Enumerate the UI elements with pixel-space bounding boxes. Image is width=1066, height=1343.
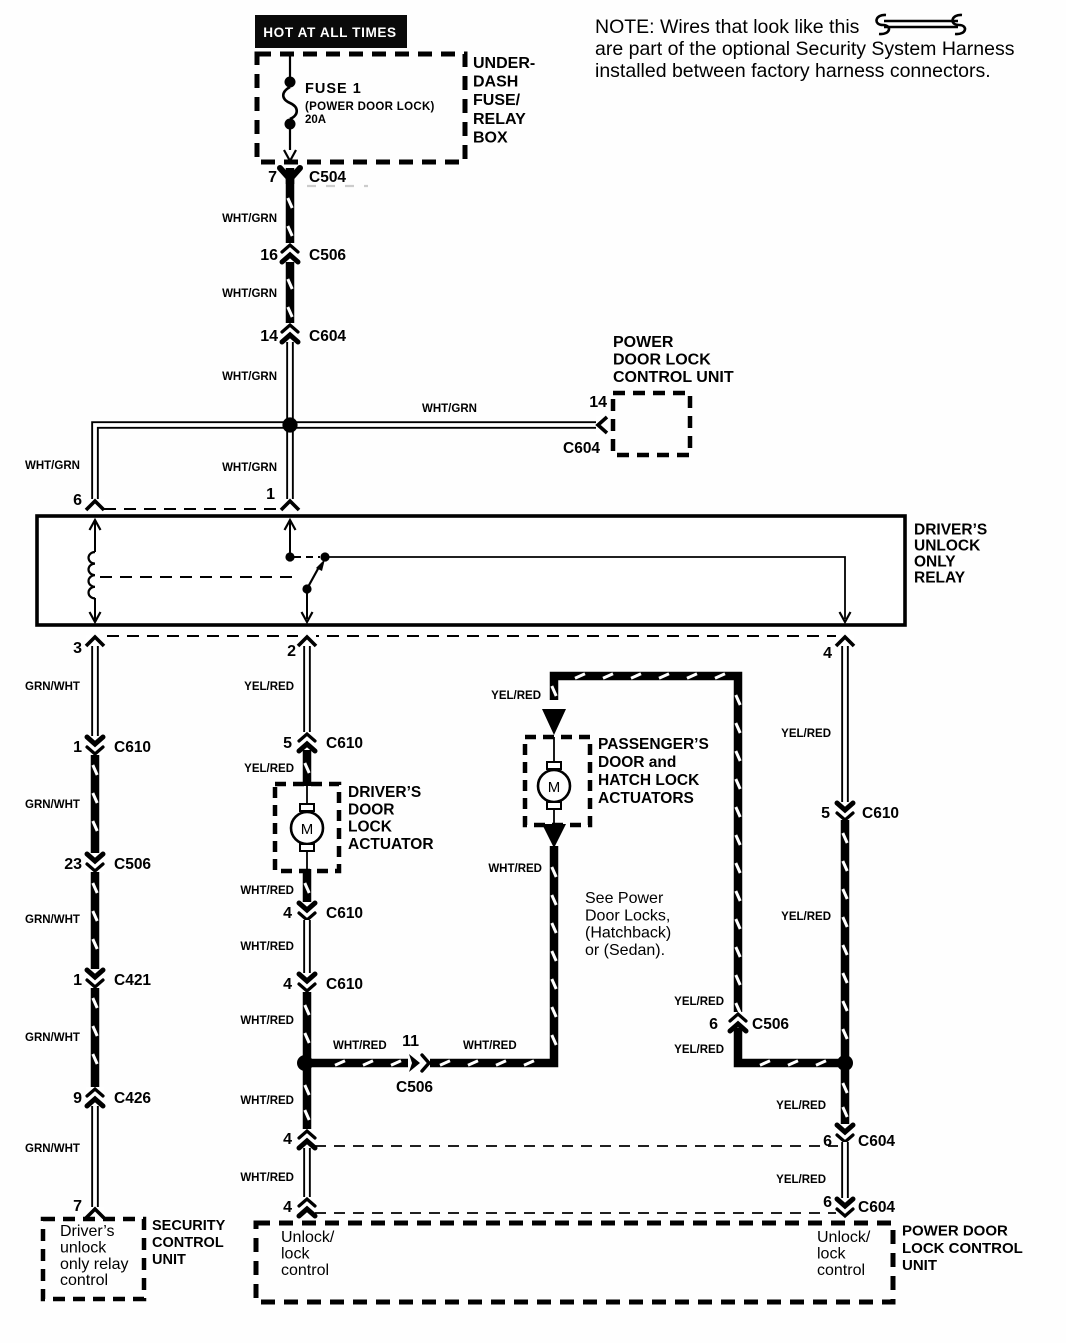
svg-text:GRN/WHT: GRN/WHT — [25, 681, 80, 693]
svg-text:UNLOCK: UNLOCK — [914, 538, 981, 555]
svg-text:only relay: only relay — [60, 1256, 128, 1273]
svg-text:YEL/RED: YEL/RED — [776, 1100, 826, 1112]
svg-text:GRN/WHT: GRN/WHT — [25, 914, 80, 926]
svg-text:C610: C610 — [326, 976, 363, 993]
svg-text:GRN/WHT: GRN/WHT — [25, 1143, 80, 1155]
svg-text:16: 16 — [260, 247, 278, 264]
svg-text:RELAY: RELAY — [914, 570, 966, 587]
svg-text:C610: C610 — [326, 905, 363, 922]
svg-text:RELAY: RELAY — [473, 111, 526, 128]
svg-text:DOOR and: DOOR and — [598, 754, 676, 771]
svg-text:PASSENGER’S: PASSENGER’S — [598, 736, 709, 753]
svg-text:C506: C506 — [396, 1079, 433, 1096]
svg-text:WHT/GRN: WHT/GRN — [422, 403, 477, 415]
svg-text:UNIT: UNIT — [902, 1257, 937, 1274]
svg-text:M: M — [301, 821, 314, 838]
svg-text:C421: C421 — [114, 972, 151, 989]
svg-text:ACTUATORS: ACTUATORS — [598, 790, 694, 807]
svg-text:C426: C426 — [114, 1090, 151, 1107]
svg-text:FUSE/: FUSE/ — [473, 92, 521, 109]
svg-text:(Hatchback): (Hatchback) — [585, 925, 671, 942]
svg-text:WHT/RED: WHT/RED — [240, 885, 294, 897]
svg-text:4: 4 — [283, 1131, 292, 1148]
svg-text:installed between factory harn: installed between factory harness connec… — [595, 60, 991, 82]
svg-text:1: 1 — [266, 486, 275, 503]
svg-text:control: control — [60, 1272, 108, 1289]
svg-text:YEL/RED: YEL/RED — [244, 763, 294, 775]
svg-text:GRN/WHT: GRN/WHT — [25, 1032, 80, 1044]
svg-text:4: 4 — [283, 905, 292, 922]
svg-text:YEL/RED: YEL/RED — [674, 996, 724, 1008]
svg-text:C506: C506 — [309, 247, 346, 264]
svg-text:5: 5 — [821, 805, 830, 822]
svg-text:1: 1 — [73, 739, 82, 756]
svg-text:C506: C506 — [752, 1016, 789, 1033]
svg-text:control: control — [817, 1262, 865, 1279]
svg-text:LOCK CONTROL: LOCK CONTROL — [902, 1240, 1023, 1257]
svg-text:4: 4 — [283, 1199, 292, 1216]
svg-text:LOCK: LOCK — [348, 819, 393, 836]
svg-text:UNIT: UNIT — [152, 1252, 186, 1268]
svg-text:lock: lock — [281, 1246, 310, 1263]
svg-text:C610: C610 — [114, 739, 151, 756]
svg-text:or (Sedan).: or (Sedan). — [585, 942, 665, 959]
svg-text:WHT/RED: WHT/RED — [488, 863, 542, 875]
svg-text:WHT/GRN: WHT/GRN — [222, 462, 277, 474]
svg-text:23: 23 — [64, 856, 82, 873]
svg-text:C604: C604 — [563, 440, 600, 457]
svg-text:14: 14 — [260, 328, 278, 345]
svg-text:DOOR LOCK: DOOR LOCK — [613, 352, 711, 369]
svg-text:(POWER DOOR LOCK): (POWER DOOR LOCK) — [305, 101, 435, 113]
svg-text:BOX: BOX — [473, 129, 508, 146]
svg-text:WHT/RED: WHT/RED — [463, 1040, 517, 1052]
svg-text:7: 7 — [73, 1198, 82, 1215]
svg-text:YEL/RED: YEL/RED — [674, 1044, 724, 1056]
svg-text:6: 6 — [823, 1133, 832, 1150]
svg-text:1: 1 — [73, 972, 82, 989]
svg-text:FUSE 1: FUSE 1 — [305, 81, 362, 97]
svg-text:WHT/GRN: WHT/GRN — [222, 213, 277, 225]
svg-text:DASH: DASH — [473, 74, 518, 91]
svg-text:SECURITY: SECURITY — [152, 1218, 226, 1234]
svg-text:11: 11 — [402, 1033, 419, 1050]
svg-text:WHT/RED: WHT/RED — [240, 1172, 294, 1184]
svg-text:WHT/RED: WHT/RED — [240, 941, 294, 953]
svg-text:2: 2 — [287, 643, 296, 660]
svg-text:4: 4 — [823, 645, 832, 662]
svg-text:C610: C610 — [862, 805, 899, 822]
svg-text:9: 9 — [73, 1090, 82, 1107]
svg-text:YEL/RED: YEL/RED — [776, 1174, 826, 1186]
svg-text:HATCH LOCK: HATCH LOCK — [598, 772, 700, 789]
svg-text:Driver’s: Driver’s — [60, 1223, 115, 1240]
svg-text:C604: C604 — [858, 1133, 895, 1150]
svg-text:DRIVER’S: DRIVER’S — [914, 522, 987, 539]
svg-text:Door Locks,: Door Locks, — [585, 907, 670, 924]
svg-text:YEL/RED: YEL/RED — [244, 681, 294, 693]
svg-text:lock: lock — [817, 1246, 846, 1263]
svg-text:14: 14 — [589, 394, 607, 411]
svg-text:DOOR: DOOR — [348, 801, 395, 818]
svg-text:YEL/RED: YEL/RED — [781, 911, 831, 923]
svg-text:ACTUATOR: ACTUATOR — [348, 836, 434, 853]
svg-text:WHT/RED: WHT/RED — [333, 1040, 387, 1052]
svg-text:6: 6 — [823, 1194, 832, 1211]
svg-text:WHT/GRN: WHT/GRN — [222, 371, 277, 383]
svg-text:DRIVER’S: DRIVER’S — [348, 784, 421, 801]
svg-text:5: 5 — [283, 735, 292, 752]
svg-text:POWER: POWER — [613, 334, 674, 351]
svg-text:20A: 20A — [305, 114, 326, 126]
svg-text:Unlock/: Unlock/ — [817, 1229, 871, 1246]
svg-text:UNDER-: UNDER- — [473, 55, 535, 72]
svg-text:NOTE: Wires that look like thi: NOTE: Wires that look like this — [595, 16, 860, 38]
svg-text:WHT/GRN: WHT/GRN — [222, 288, 277, 300]
svg-text:WHT/RED: WHT/RED — [240, 1095, 294, 1107]
svg-text:WHT/GRN: WHT/GRN — [25, 460, 80, 472]
svg-text:CONTROL UNIT: CONTROL UNIT — [613, 369, 734, 386]
svg-text:C604: C604 — [309, 328, 346, 345]
svg-text:7: 7 — [268, 169, 277, 186]
svg-text:6: 6 — [709, 1016, 718, 1033]
svg-text:Unlock/: Unlock/ — [281, 1229, 335, 1246]
svg-text:CONTROL: CONTROL — [152, 1235, 224, 1251]
svg-text:C610: C610 — [326, 735, 363, 752]
svg-text:control: control — [281, 1262, 329, 1279]
svg-text:POWER DOOR: POWER DOOR — [902, 1223, 1008, 1240]
svg-text:GRN/WHT: GRN/WHT — [25, 799, 80, 811]
svg-text:M: M — [548, 779, 561, 796]
svg-text:YEL/RED: YEL/RED — [491, 690, 541, 702]
svg-text:6: 6 — [73, 492, 82, 509]
svg-text:unlock: unlock — [60, 1239, 107, 1256]
svg-text:4: 4 — [283, 976, 292, 993]
svg-text:ONLY: ONLY — [914, 554, 956, 571]
svg-text:C506: C506 — [114, 856, 151, 873]
svg-text:WHT/RED: WHT/RED — [240, 1015, 294, 1027]
svg-text:C604: C604 — [858, 1199, 895, 1216]
svg-text:See Power: See Power — [585, 890, 664, 907]
svg-text:3: 3 — [73, 640, 82, 657]
svg-text:are part of the optional Secur: are part of the optional Security System… — [595, 38, 1015, 60]
svg-text:HOT AT ALL TIMES: HOT AT ALL TIMES — [263, 25, 396, 40]
svg-text:YEL/RED: YEL/RED — [781, 728, 831, 740]
svg-text:C504: C504 — [309, 169, 346, 186]
